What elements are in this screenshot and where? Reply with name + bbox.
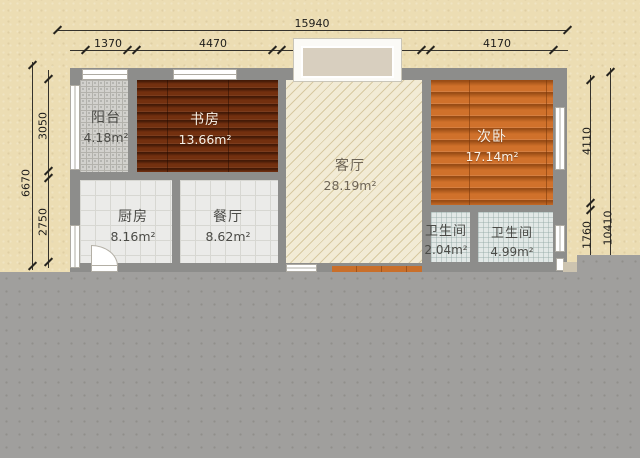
door-living-bottom — [286, 264, 317, 272]
dim-line-left-total — [32, 62, 33, 270]
window-balcony-top — [82, 69, 128, 80]
label-kitchen: 厨房 8.16m² — [110, 208, 155, 246]
window-balcony-left — [70, 85, 80, 170]
label-balcony: 阳台 4.18m² — [83, 109, 128, 147]
dim-right-seg-0: 4110 — [581, 127, 594, 155]
wall-kitchen-dining — [172, 180, 180, 272]
room-study-name: 书房 — [179, 111, 232, 130]
room-bath-large-name: 卫生间 — [490, 224, 533, 243]
room-dining-name: 餐厅 — [205, 208, 250, 227]
dim-left-seg-0: 3050 — [37, 112, 50, 140]
label-bath-large: 卫生间 4.99m² — [490, 224, 533, 262]
dim-top-seg-3: 4170 — [483, 37, 511, 50]
tick — [563, 25, 572, 34]
room-bath-small-name: 卫生间 — [424, 222, 467, 241]
wall-balcony-study — [128, 80, 137, 172]
label-bath-small: 卫生间 2.04m² — [424, 222, 467, 260]
window-bath-right — [555, 225, 565, 252]
label-bedroom2: 次卧 17.14m² — [466, 128, 519, 166]
room-bath-small-area: 2.04m² — [424, 241, 467, 260]
window-study-top — [173, 69, 237, 80]
room-kitchen-name: 厨房 — [110, 208, 155, 227]
window-kitchen-left — [70, 225, 80, 268]
room-bedroom2-area: 17.14m² — [466, 147, 519, 166]
room-kitchen-area: 8.16m² — [110, 227, 155, 246]
wall-bedroom-bath — [431, 205, 553, 212]
dim-right-total: 10410 — [602, 211, 615, 246]
bay-window-panel — [301, 46, 394, 78]
dim-left-total: 6670 — [20, 169, 33, 197]
floor-plan-canvas: 15940 1370 4470 4640 4170 6670 3050 2750… — [0, 0, 640, 458]
room-balcony-area: 4.18m² — [83, 128, 128, 147]
dim-top-total: 15940 — [295, 17, 330, 30]
dim-line-top-total — [57, 30, 568, 31]
room-dining-area: 8.62m² — [205, 227, 250, 246]
room-bedroom2-name: 次卧 — [466, 128, 519, 147]
label-study: 书房 13.66m² — [179, 111, 232, 149]
room-living-name: 客厅 — [324, 157, 377, 176]
wall-bottom-bath — [420, 262, 567, 272]
window-bedroom-right — [555, 107, 565, 170]
gray-overlay-right — [577, 255, 640, 272]
dim-top-seg-0: 1370 — [94, 37, 122, 50]
label-living: 客厅 28.19m² — [324, 157, 377, 195]
room-living-area: 28.19m² — [324, 176, 377, 195]
label-dining: 餐厅 8.62m² — [205, 208, 250, 246]
room-bath-large-area: 4.99m² — [490, 243, 533, 262]
gray-overlay-main — [0, 272, 640, 458]
wall-balcony-kitchen — [80, 172, 286, 180]
room-study-area: 13.66m² — [179, 130, 232, 149]
dim-right-seg-1: 1760 — [581, 221, 594, 249]
room-balcony-name: 阳台 — [83, 109, 128, 128]
wall-bath-bath — [470, 212, 478, 262]
dim-left-seg-1: 2750 — [37, 208, 50, 236]
dim-top-seg-1: 4470 — [199, 37, 227, 50]
